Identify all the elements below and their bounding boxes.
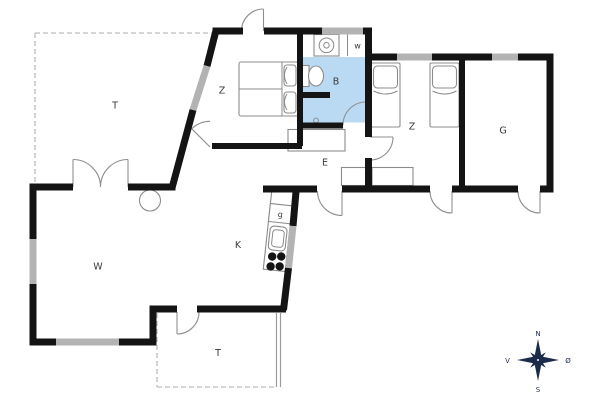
room-label-bathroom: B: [333, 77, 340, 88]
door-bedroom-double: [192, 121, 210, 147]
door-arc: [73, 160, 101, 188]
door-hall-exterior: [318, 191, 343, 216]
washing-machine-label: w: [354, 42, 361, 51]
door-arc: [192, 121, 210, 129]
toilet-bowl: [309, 66, 324, 86]
pillow: [433, 66, 457, 88]
window: [289, 226, 294, 268]
compass-south-label: S: [536, 386, 541, 394]
floorplan-viewport: g: [0, 0, 600, 400]
compass-hub-dot: [537, 359, 539, 361]
door-bedroom-exterior-top: [242, 9, 264, 31]
single-bed: [371, 63, 400, 127]
room-label-terrace-bottom: T: [214, 348, 221, 359]
room-label-living-room: W: [93, 262, 103, 273]
room-label-hallway: E: [322, 158, 328, 169]
room-label-terrace-top: T: [111, 101, 118, 112]
room-label-room-g: G: [499, 126, 506, 137]
door-arc: [318, 191, 343, 216]
compass-north-label: N: [535, 330, 540, 338]
compass-rose-icon: N S V Ø: [505, 330, 571, 394]
compass-west-label: V: [505, 357, 510, 365]
bedroom-closet: [372, 168, 413, 186]
door-arc: [430, 191, 452, 213]
door-arc: [370, 137, 393, 160]
single-bed: [430, 63, 459, 127]
room-label-kitchen: K: [235, 240, 242, 251]
door-arc: [177, 312, 199, 334]
wall-segment: [172, 110, 193, 188]
terrace-top-outline: [35, 33, 215, 186]
double-bed: [239, 62, 298, 116]
door-leaf: [192, 129, 210, 147]
door-arc: [101, 160, 129, 188]
door-arc: [518, 191, 540, 213]
room-label-bedroom-twin: Z: [409, 122, 416, 133]
window: [193, 66, 207, 110]
washing-machine-icon: [314, 35, 339, 57]
hall-closet: [342, 168, 368, 186]
room-label-bedroom-double: Z: [219, 86, 226, 97]
floor-plan-canvas: g: [0, 0, 600, 400]
wood-stove-icon: [140, 190, 161, 211]
door-kitchen-terrace: [177, 312, 199, 334]
pillow: [374, 66, 398, 88]
door-bedroom-twin: [370, 137, 393, 160]
door-room-g-exterior: [518, 191, 540, 213]
pillow: [284, 65, 296, 86]
wall-segment: [284, 268, 289, 310]
toilet-icon: [302, 66, 324, 87]
compass-east-label: Ø: [565, 357, 571, 365]
door-living-room-double: [73, 160, 128, 188]
dishwasher-label: g: [277, 210, 283, 219]
door-bedroom-twin-exterior: [430, 191, 452, 213]
door-arc: [242, 9, 264, 31]
